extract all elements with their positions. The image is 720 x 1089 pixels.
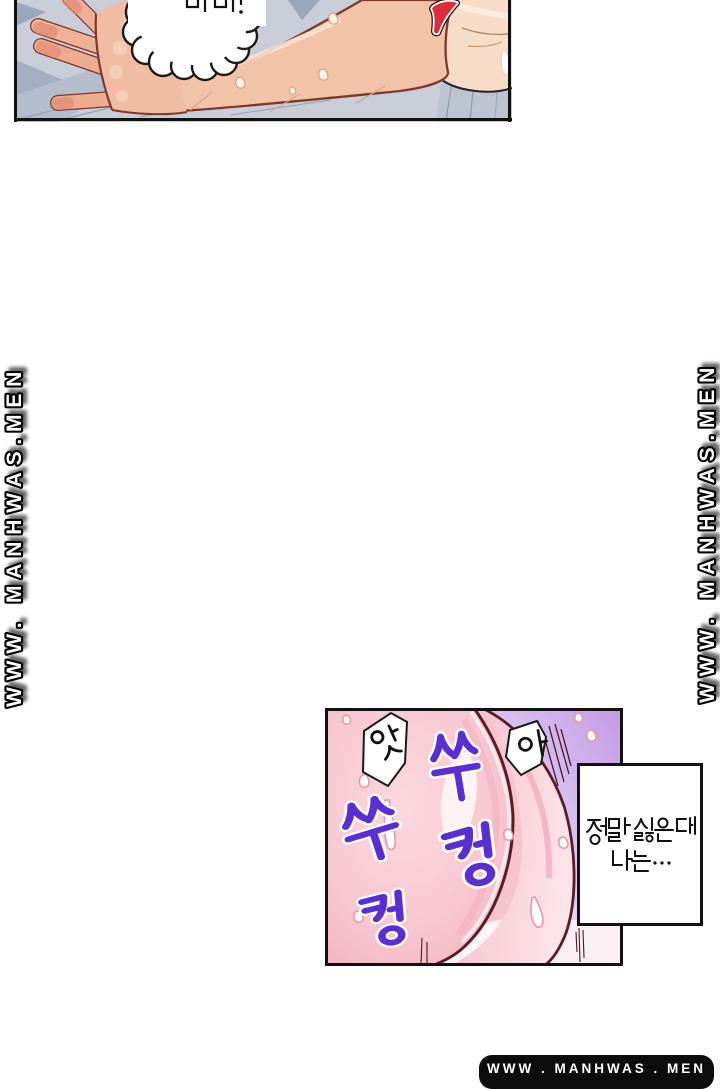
svg-text:WWW. MANHWAS.MEN: WWW. MANHWAS.MEN <box>696 361 719 703</box>
svg-text:WWW. MANHWAS.MEN: WWW. MANHWAS.MEN <box>3 365 26 707</box>
